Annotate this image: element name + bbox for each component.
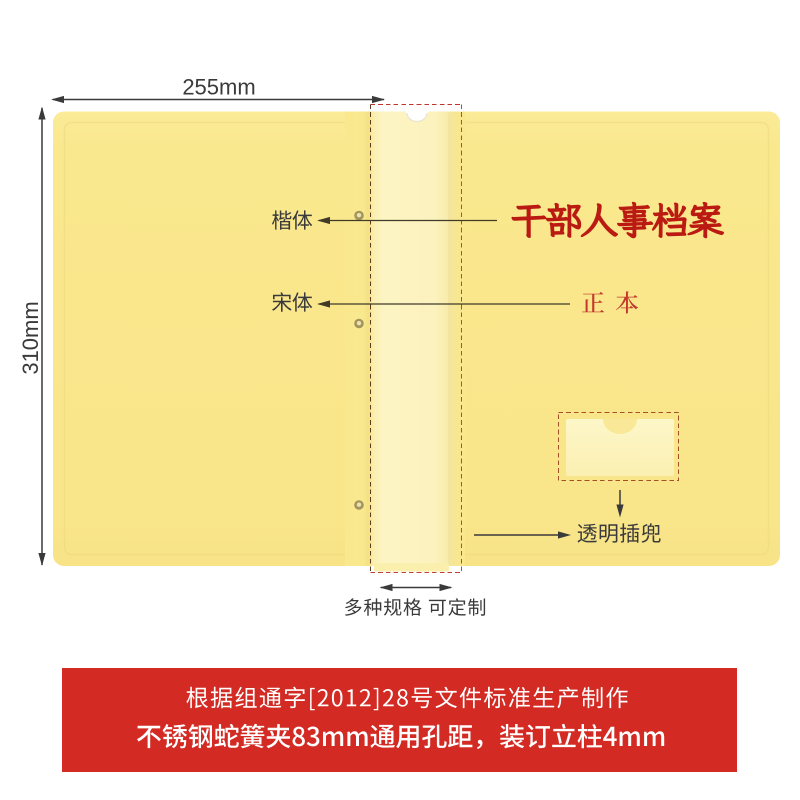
svg-text:255mm: 255mm — [182, 75, 255, 100]
svg-text:310mm: 310mm — [18, 301, 43, 374]
